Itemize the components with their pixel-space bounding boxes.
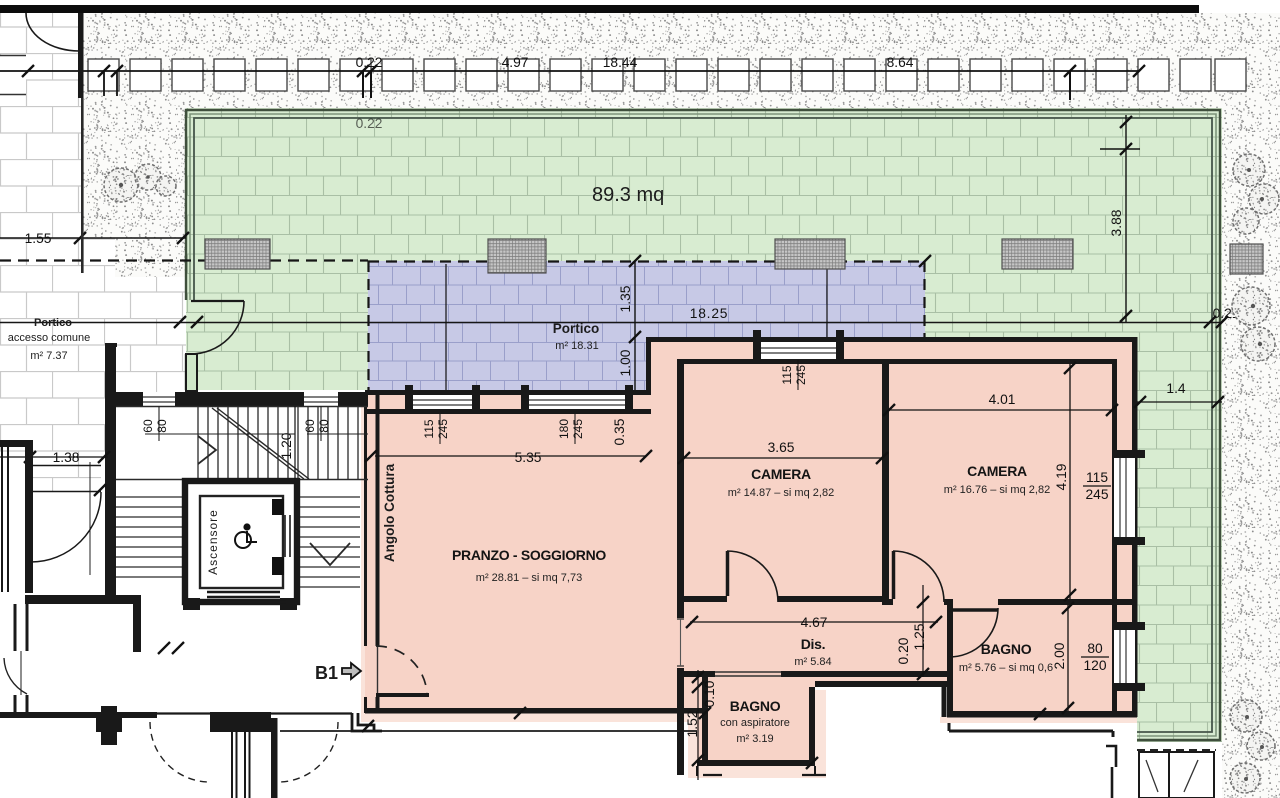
svg-text:Dis.: Dis.	[801, 636, 825, 652]
svg-text:1.25: 1.25	[912, 623, 927, 650]
svg-text:con aspiratore: con aspiratore	[720, 717, 790, 729]
svg-text:0.10: 0.10	[702, 680, 717, 707]
svg-text:Ascensore: Ascensore	[206, 509, 220, 575]
svg-text:Portico: Portico	[553, 321, 600, 336]
svg-text:CAMERA: CAMERA	[967, 463, 1027, 479]
svg-text:0.20: 0.20	[896, 637, 911, 664]
svg-text:m² 7.37: m² 7.37	[30, 350, 67, 362]
svg-text:BAGNO: BAGNO	[981, 641, 1032, 657]
svg-text:115: 115	[780, 365, 794, 384]
svg-text:180: 180	[557, 419, 571, 439]
svg-text:m² 14.87 – si mq 2,82: m² 14.87 – si mq 2,82	[728, 487, 834, 499]
svg-text:m² 18.31: m² 18.31	[555, 340, 598, 352]
svg-text:2.00: 2.00	[1052, 642, 1067, 669]
svg-text:0.22: 0.22	[356, 116, 383, 131]
svg-text:18.25: 18.25	[690, 306, 729, 321]
svg-text:4.01: 4.01	[989, 392, 1016, 407]
svg-text:89.3 mq: 89.3 mq	[592, 184, 664, 206]
svg-text:245: 245	[794, 365, 808, 385]
svg-text:60: 60	[303, 419, 317, 433]
svg-text:BAGNO: BAGNO	[730, 698, 781, 714]
svg-text:115: 115	[1086, 470, 1108, 485]
svg-text:120: 120	[1083, 658, 1106, 673]
svg-text:4.97: 4.97	[502, 55, 529, 70]
svg-text:CAMERA: CAMERA	[751, 466, 811, 482]
svg-text:3.88: 3.88	[1109, 209, 1124, 236]
svg-text:4.67: 4.67	[801, 615, 828, 630]
svg-text:4.19: 4.19	[1054, 463, 1069, 490]
svg-text:1.00: 1.00	[618, 349, 633, 376]
svg-text:80: 80	[155, 419, 169, 433]
svg-text:m² 3.19: m² 3.19	[736, 733, 773, 745]
svg-text:1.38: 1.38	[53, 450, 80, 465]
svg-text:m² 28.81 – si mq 7,73: m² 28.81 – si mq 7,73	[476, 572, 582, 584]
svg-text:8.64: 8.64	[887, 55, 914, 70]
svg-text:245: 245	[571, 419, 585, 439]
svg-text:5.35: 5.35	[515, 450, 542, 465]
svg-text:m² 16.76 – si mq 2,82: m² 16.76 – si mq 2,82	[944, 484, 1050, 496]
svg-text:1.52: 1.52	[685, 711, 700, 738]
svg-text:80: 80	[1087, 641, 1103, 656]
svg-text:m² 5.84: m² 5.84	[794, 656, 831, 668]
svg-text:Angolo Cottura: Angolo Cottura	[382, 463, 397, 562]
svg-text:accesso comune: accesso comune	[8, 332, 91, 344]
svg-text:115: 115	[422, 419, 436, 438]
svg-text:245: 245	[436, 419, 450, 439]
svg-text:0.35: 0.35	[612, 418, 627, 445]
svg-text:1.20: 1.20	[279, 432, 294, 459]
svg-text:Portico: Portico	[34, 317, 72, 329]
svg-text:3.65: 3.65	[768, 440, 795, 455]
svg-text:1.35: 1.35	[618, 285, 633, 312]
svg-text:245: 245	[1085, 487, 1108, 502]
svg-text:m² 5.76 – si mq 0,6: m² 5.76 – si mq 0,6	[959, 662, 1053, 674]
svg-text:60: 60	[141, 419, 155, 433]
svg-text:B1: B1	[315, 663, 338, 683]
svg-text:1.4: 1.4	[1166, 381, 1186, 396]
svg-text:0.22: 0.22	[356, 55, 383, 70]
svg-text:18.44: 18.44	[603, 55, 638, 70]
svg-text:PRANZO - SOGGIORNO: PRANZO - SOGGIORNO	[452, 547, 606, 563]
svg-text:80: 80	[317, 419, 331, 433]
svg-text:1.55: 1.55	[25, 231, 52, 246]
